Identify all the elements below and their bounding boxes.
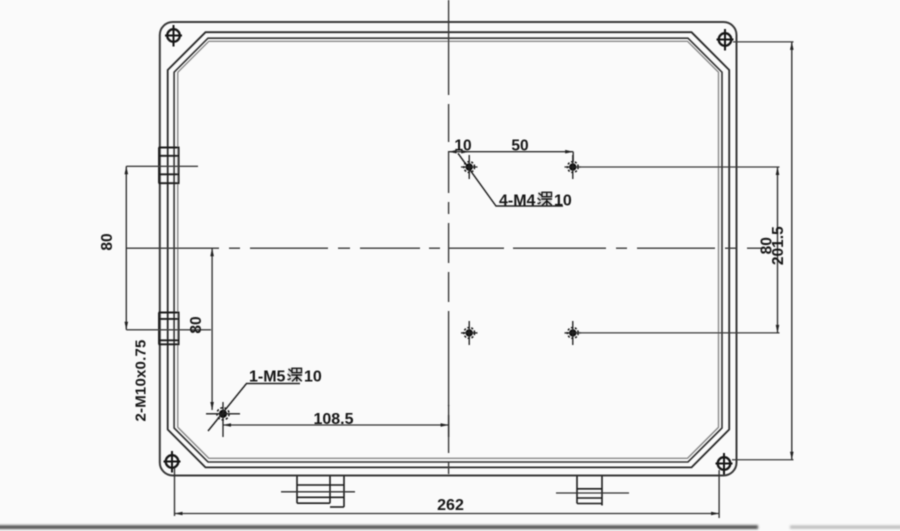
svg-text:80: 80 — [99, 233, 116, 250]
svg-text:10: 10 — [454, 138, 471, 155]
svg-text:108.5: 108.5 — [313, 411, 353, 428]
svg-text:10: 10 — [304, 369, 322, 386]
svg-text:50: 50 — [511, 138, 528, 155]
svg-text:1-M5: 1-M5 — [249, 369, 286, 386]
svg-text:80: 80 — [188, 316, 205, 333]
svg-text:2-M10x0.75: 2-M10x0.75 — [133, 339, 150, 421]
svg-text:10: 10 — [554, 193, 572, 210]
svg-text:201.5: 201.5 — [770, 226, 787, 265]
svg-text:4-M4: 4-M4 — [499, 193, 536, 210]
svg-text:262: 262 — [437, 497, 464, 514]
